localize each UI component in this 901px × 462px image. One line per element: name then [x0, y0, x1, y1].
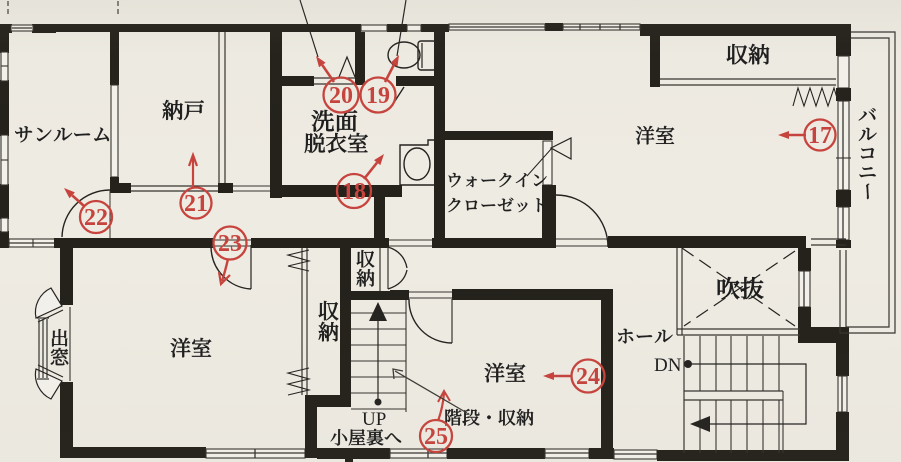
- svg-text:17: 17: [808, 123, 832, 149]
- svg-text:UP: UP: [362, 409, 386, 430]
- svg-text:18: 18: [342, 179, 366, 205]
- svg-text:19: 19: [366, 83, 390, 109]
- svg-text:23: 23: [218, 231, 242, 257]
- svg-text:21: 21: [184, 191, 208, 217]
- svg-text:22: 22: [84, 205, 108, 231]
- svg-text:20: 20: [329, 83, 353, 109]
- svg-text:DN: DN: [654, 355, 682, 376]
- svg-text:25: 25: [424, 424, 448, 450]
- svg-text:24: 24: [576, 364, 600, 390]
